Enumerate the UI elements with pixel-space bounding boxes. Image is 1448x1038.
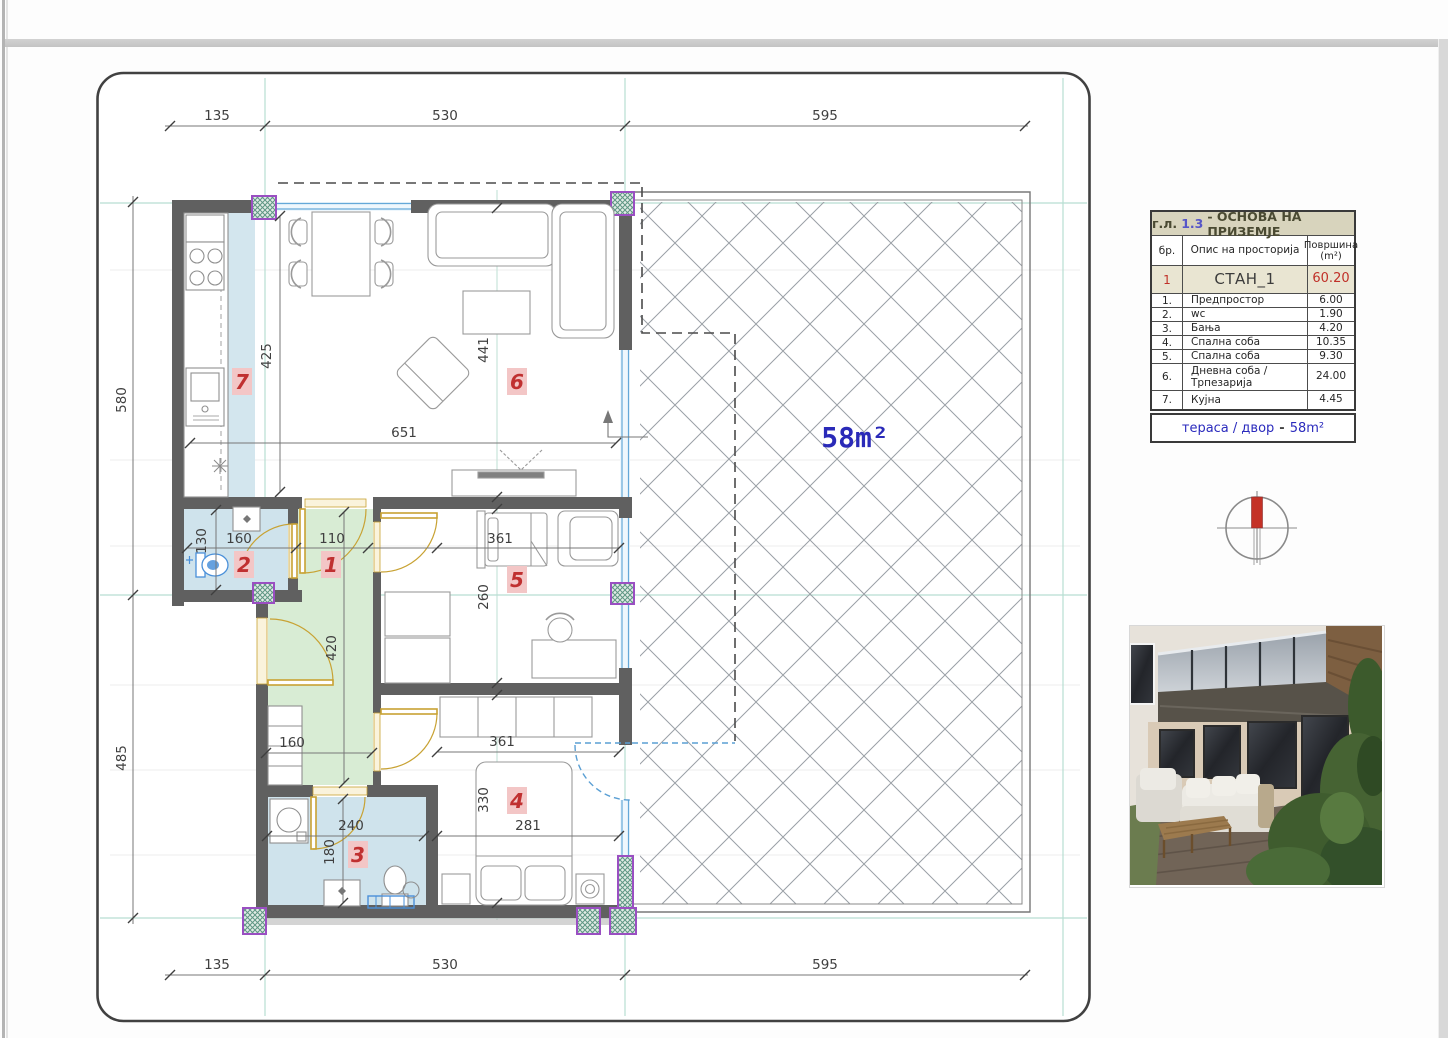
room-number-hall: 1 [324, 553, 338, 577]
dim-bed5-260: 260 [476, 584, 492, 610]
col-desc: Опис на просторија [1183, 236, 1308, 265]
table-row: 3. Бања 4.20 [1152, 322, 1354, 336]
terrace-hatch [640, 202, 1022, 904]
terrace-area-value: 58m² [1290, 421, 1324, 436]
room-number-bed4: 4 [509, 789, 524, 813]
kitchen-fixtures [184, 213, 228, 497]
dim-top-530: 530 [432, 108, 458, 124]
sheet-title: - ОСНОВА НА ПРИЗЕМЈЕ [1207, 209, 1354, 239]
dim-bottom-530: 530 [432, 957, 458, 973]
room-number-bed5: 5 [510, 568, 524, 592]
room-number-wc: 2 [237, 553, 251, 577]
room-number-living: 6 [510, 370, 524, 394]
dim-bed5-361: 361 [487, 531, 513, 547]
dim-bath-180: 180 [322, 839, 338, 865]
table-title: г.л. 1.3 - ОСНОВА НА ПРИЗЕМЈЕ [1152, 212, 1354, 236]
north-needle [1252, 497, 1263, 528]
table-row: 1. Предпростор 6.00 [1152, 294, 1354, 308]
dim-living-651: 651 [391, 425, 417, 441]
sheet-prefix: г.л. [1152, 216, 1177, 231]
dim-wc-160: 160 [226, 531, 252, 547]
terrace-area-label: 58m² [821, 421, 888, 454]
dim-living-441: 441 [476, 337, 492, 363]
table-row: 7. Кујна 4.45 [1152, 391, 1354, 409]
col-no: бр. [1152, 236, 1183, 265]
dim-bed4-330: 330 [476, 787, 492, 813]
terrace: 58m² [634, 192, 1030, 912]
dim-hall-110: 110 [319, 531, 345, 547]
dim-hall-160: 160 [279, 735, 305, 751]
radiator-icon [212, 458, 228, 474]
terrace-separator: - [1279, 421, 1284, 436]
building-photo [1129, 625, 1385, 888]
dim-bed4-281: 281 [515, 818, 541, 834]
floor-plan-viewer: 58m² [0, 0, 1448, 1038]
dim-top-595: 595 [812, 108, 838, 124]
room-area-table: г.л. 1.3 - ОСНОВА НА ПРИЗЕМЈЕ бр. Опис н… [1150, 210, 1356, 411]
table-row: 5. Спална соба 9.30 [1152, 350, 1354, 364]
table-row: 2. wc 1.90 [1152, 308, 1354, 322]
dim-kitchen-425: 425 [259, 343, 275, 369]
dim-wc-130: 130 [194, 528, 210, 554]
dim-bottom-595: 595 [812, 957, 838, 973]
dim-left-485: 485 [114, 745, 130, 771]
table-row: 4. Спална соба 10.35 [1152, 336, 1354, 350]
dim-hall-420: 420 [324, 635, 340, 661]
table-column-header: бр. Опис на просторија Површина (m²) [1152, 236, 1354, 266]
sheet-number: 1.3 [1181, 216, 1203, 231]
north-arrow [1207, 477, 1307, 581]
room-number-kitchen: 7 [235, 370, 249, 394]
dim-bed4-361: 361 [489, 734, 515, 750]
dim-top-135: 135 [204, 108, 230, 124]
building-photo-image [1130, 626, 1382, 885]
room-number-bath: 3 [351, 843, 365, 867]
dim-left-580: 580 [114, 387, 130, 413]
table-row: 6. Дневна соба / Трпезарија 24.00 [1152, 364, 1354, 391]
terrace-label: тераса / двор [1182, 421, 1274, 436]
dim-bath-240: 240 [338, 818, 364, 834]
dim-bottom-135: 135 [204, 957, 230, 973]
table-row-apartment: 1 СТАН_1 60.20 [1152, 266, 1354, 294]
col-area: Површина (m²) [1308, 236, 1354, 265]
terrace-area-box: тераса / двор - 58m² [1150, 413, 1356, 443]
